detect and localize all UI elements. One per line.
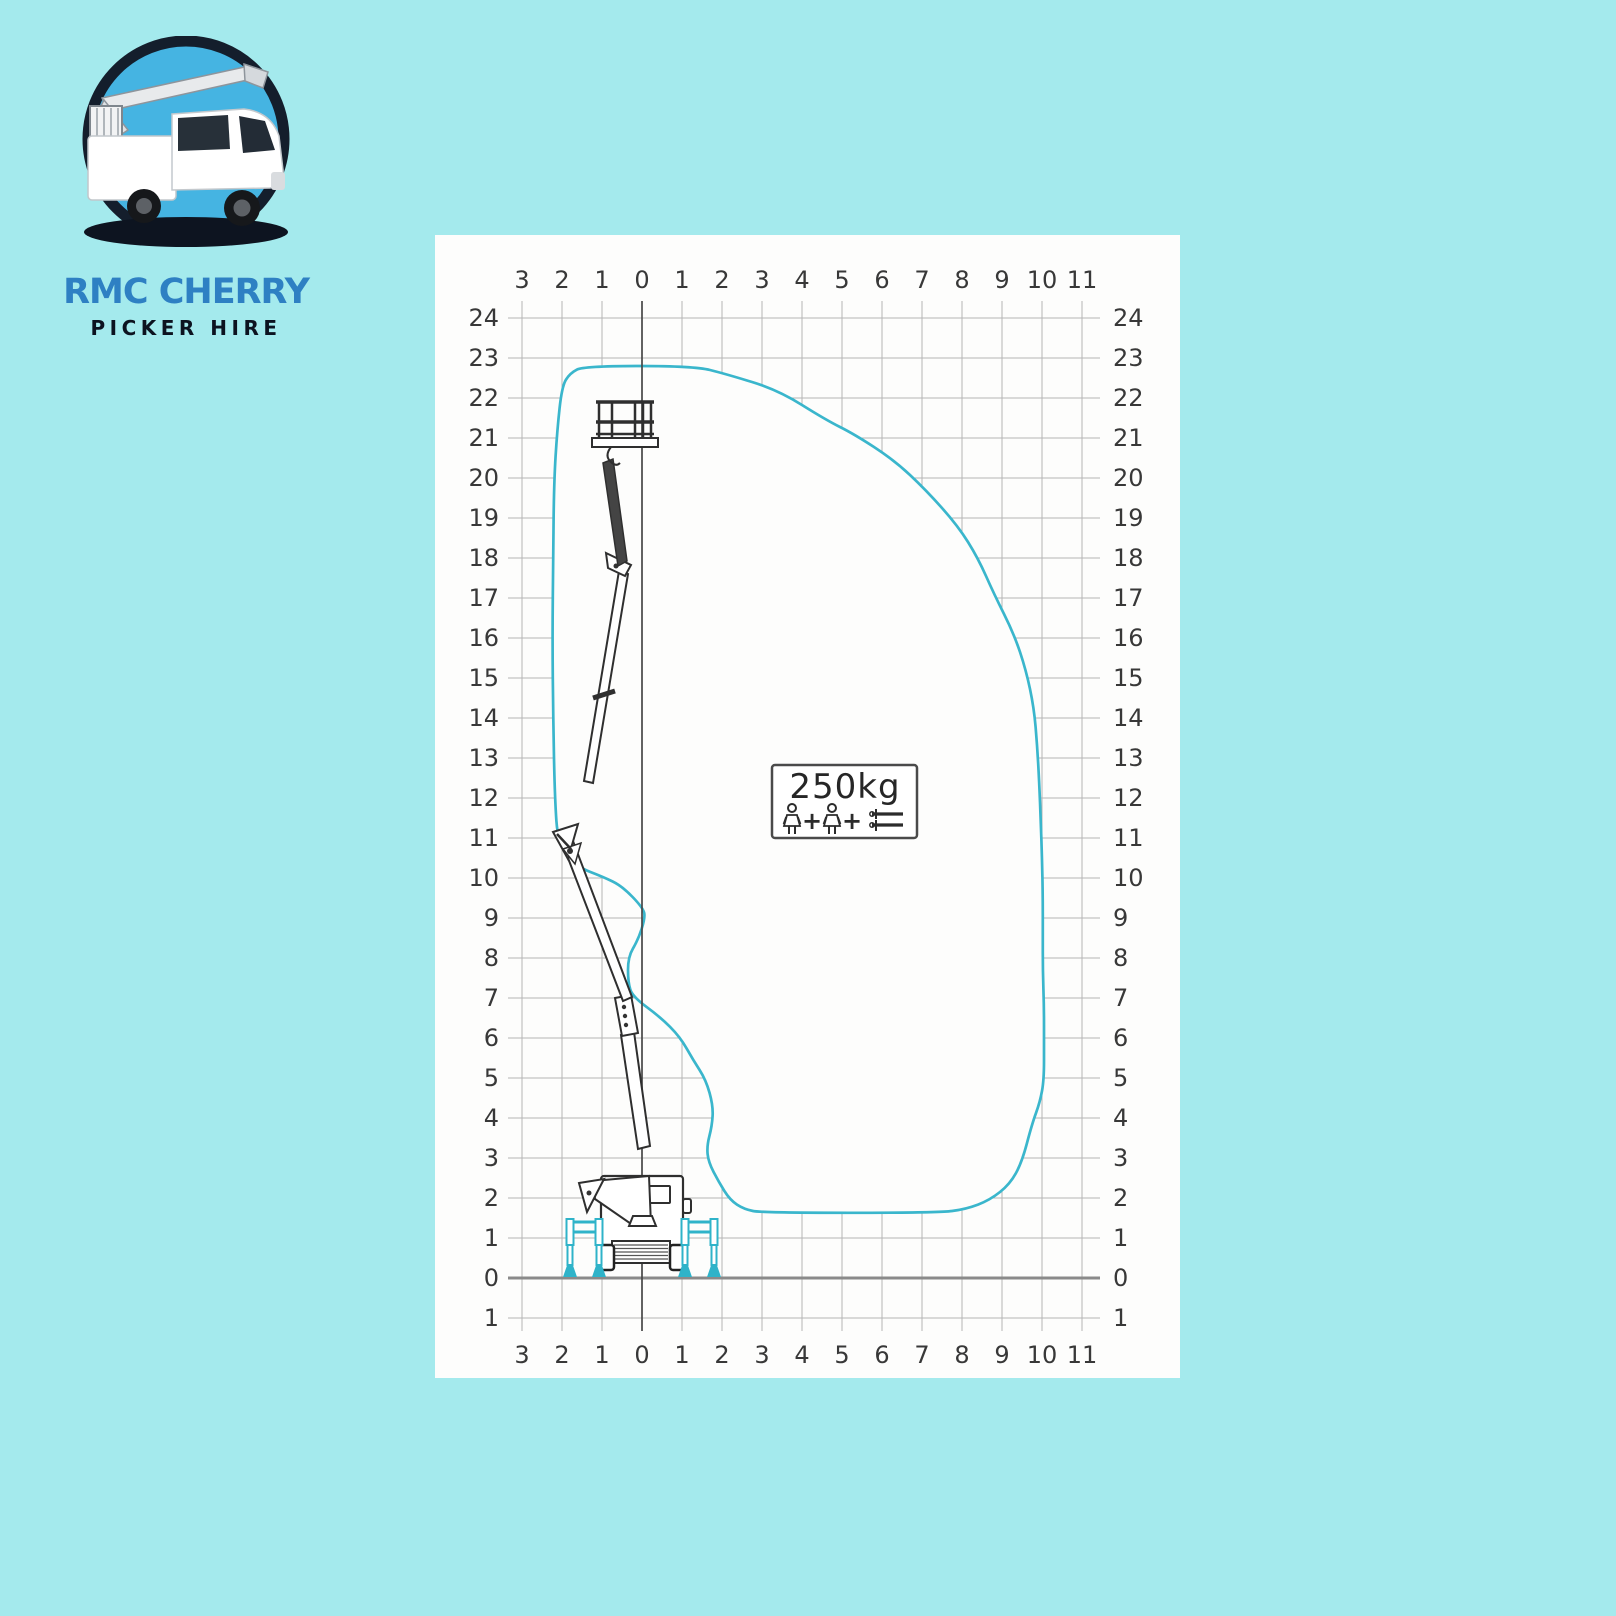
svg-text:1: 1 [594,1341,609,1369]
svg-text:5: 5 [484,1064,499,1092]
svg-text:7: 7 [484,984,499,1012]
svg-text:13: 13 [468,744,499,772]
company-logo: RMC CHERRY PICKER HIRE [40,36,332,340]
svg-text:2: 2 [714,266,729,294]
svg-text:7: 7 [914,1341,929,1369]
svg-text:9: 9 [994,266,1009,294]
svg-text:10: 10 [468,864,499,892]
svg-text:18: 18 [468,544,499,572]
svg-text:22: 22 [1113,384,1144,412]
svg-text:20: 20 [1113,464,1144,492]
svg-text:8: 8 [954,266,969,294]
svg-text:11: 11 [1067,1341,1098,1369]
svg-text:9: 9 [994,1341,1009,1369]
svg-text:3: 3 [484,1144,499,1172]
svg-text:1: 1 [484,1304,499,1332]
svg-text:1: 1 [674,266,689,294]
svg-text:0: 0 [634,1341,649,1369]
svg-text:11: 11 [1113,824,1144,852]
svg-text:8: 8 [1113,944,1128,972]
svg-text:5: 5 [834,1341,849,1369]
page-background: RMC CHERRY PICKER HIRE 32101234567891011… [0,0,1616,1616]
svg-text:23: 23 [1113,344,1144,372]
svg-text:1: 1 [1113,1304,1128,1332]
svg-text:4: 4 [794,266,809,294]
svg-text:4: 4 [484,1104,499,1132]
svg-text:0: 0 [634,266,649,294]
svg-text:9: 9 [1113,904,1128,932]
plus-sign: + [802,807,822,835]
svg-text:1: 1 [1113,1224,1128,1252]
svg-text:21: 21 [1113,424,1144,452]
svg-text:13: 13 [1113,744,1144,772]
logo-title: RMC CHERRY [40,272,332,312]
svg-text:20: 20 [468,464,499,492]
svg-text:3: 3 [1113,1144,1128,1172]
svg-text:8: 8 [954,1341,969,1369]
svg-text:23: 23 [468,344,499,372]
svg-text:8: 8 [484,944,499,972]
load-capacity-label: 250kg [789,767,900,807]
svg-text:2: 2 [1113,1184,1128,1212]
chassis-ear [683,1199,691,1213]
svg-text:7: 7 [914,266,929,294]
svg-text:4: 4 [1113,1104,1128,1132]
svg-text:24: 24 [1113,304,1144,332]
svg-text:24: 24 [468,304,499,332]
svg-text:6: 6 [874,266,889,294]
svg-text:9: 9 [484,904,499,932]
svg-text:4: 4 [794,1341,809,1369]
svg-text:0: 0 [484,1264,499,1292]
working-envelope-diagram: 3210123456789101132101234567891011242322… [435,235,1180,1378]
reach-diagram-panel: 3210123456789101132101234567891011242322… [435,235,1180,1378]
svg-text:7: 7 [1113,984,1128,1012]
svg-text:5: 5 [834,266,849,294]
svg-text:3: 3 [514,1341,529,1369]
svg-text:5: 5 [1113,1064,1128,1092]
svg-text:0: 0 [1113,1264,1128,1292]
svg-text:10: 10 [1027,266,1058,294]
svg-text:1: 1 [594,266,609,294]
svg-text:19: 19 [468,504,499,532]
svg-text:14: 14 [1113,704,1144,732]
svg-text:6: 6 [484,1024,499,1052]
svg-text:10: 10 [1113,864,1144,892]
svg-text:1: 1 [484,1224,499,1252]
svg-text:11: 11 [1067,266,1098,294]
svg-text:14: 14 [468,704,499,732]
plus-sign: + [842,807,862,835]
svg-text:17: 17 [1113,584,1144,612]
logo-subtitle: PICKER HIRE [40,316,332,340]
svg-text:16: 16 [1113,624,1144,652]
svg-text:16: 16 [468,624,499,652]
svg-text:3: 3 [754,266,769,294]
turret-foot [629,1216,656,1226]
svg-text:10: 10 [1027,1341,1058,1369]
svg-text:15: 15 [1113,664,1144,692]
svg-text:6: 6 [874,1341,889,1369]
svg-text:17: 17 [468,584,499,612]
cherry-picker-truck-icon [74,36,298,258]
svg-text:3: 3 [754,1341,769,1369]
load-capacity-box: 250kg + + [772,765,917,838]
outrigger-leg [707,1219,721,1277]
svg-text:22: 22 [468,384,499,412]
svg-text:1: 1 [674,1341,689,1369]
svg-text:21: 21 [468,424,499,452]
lower-boom-section [621,1032,650,1149]
svg-text:18: 18 [1113,544,1144,572]
svg-text:12: 12 [468,784,499,812]
svg-text:2: 2 [554,1341,569,1369]
svg-text:2: 2 [554,266,569,294]
svg-text:15: 15 [468,664,499,692]
svg-text:2: 2 [484,1184,499,1212]
outrigger-leg [563,1219,577,1277]
svg-text:11: 11 [468,824,499,852]
svg-text:2: 2 [714,1341,729,1369]
svg-text:12: 12 [1113,784,1144,812]
svg-text:6: 6 [1113,1024,1128,1052]
svg-text:19: 19 [1113,504,1144,532]
svg-text:3: 3 [514,266,529,294]
